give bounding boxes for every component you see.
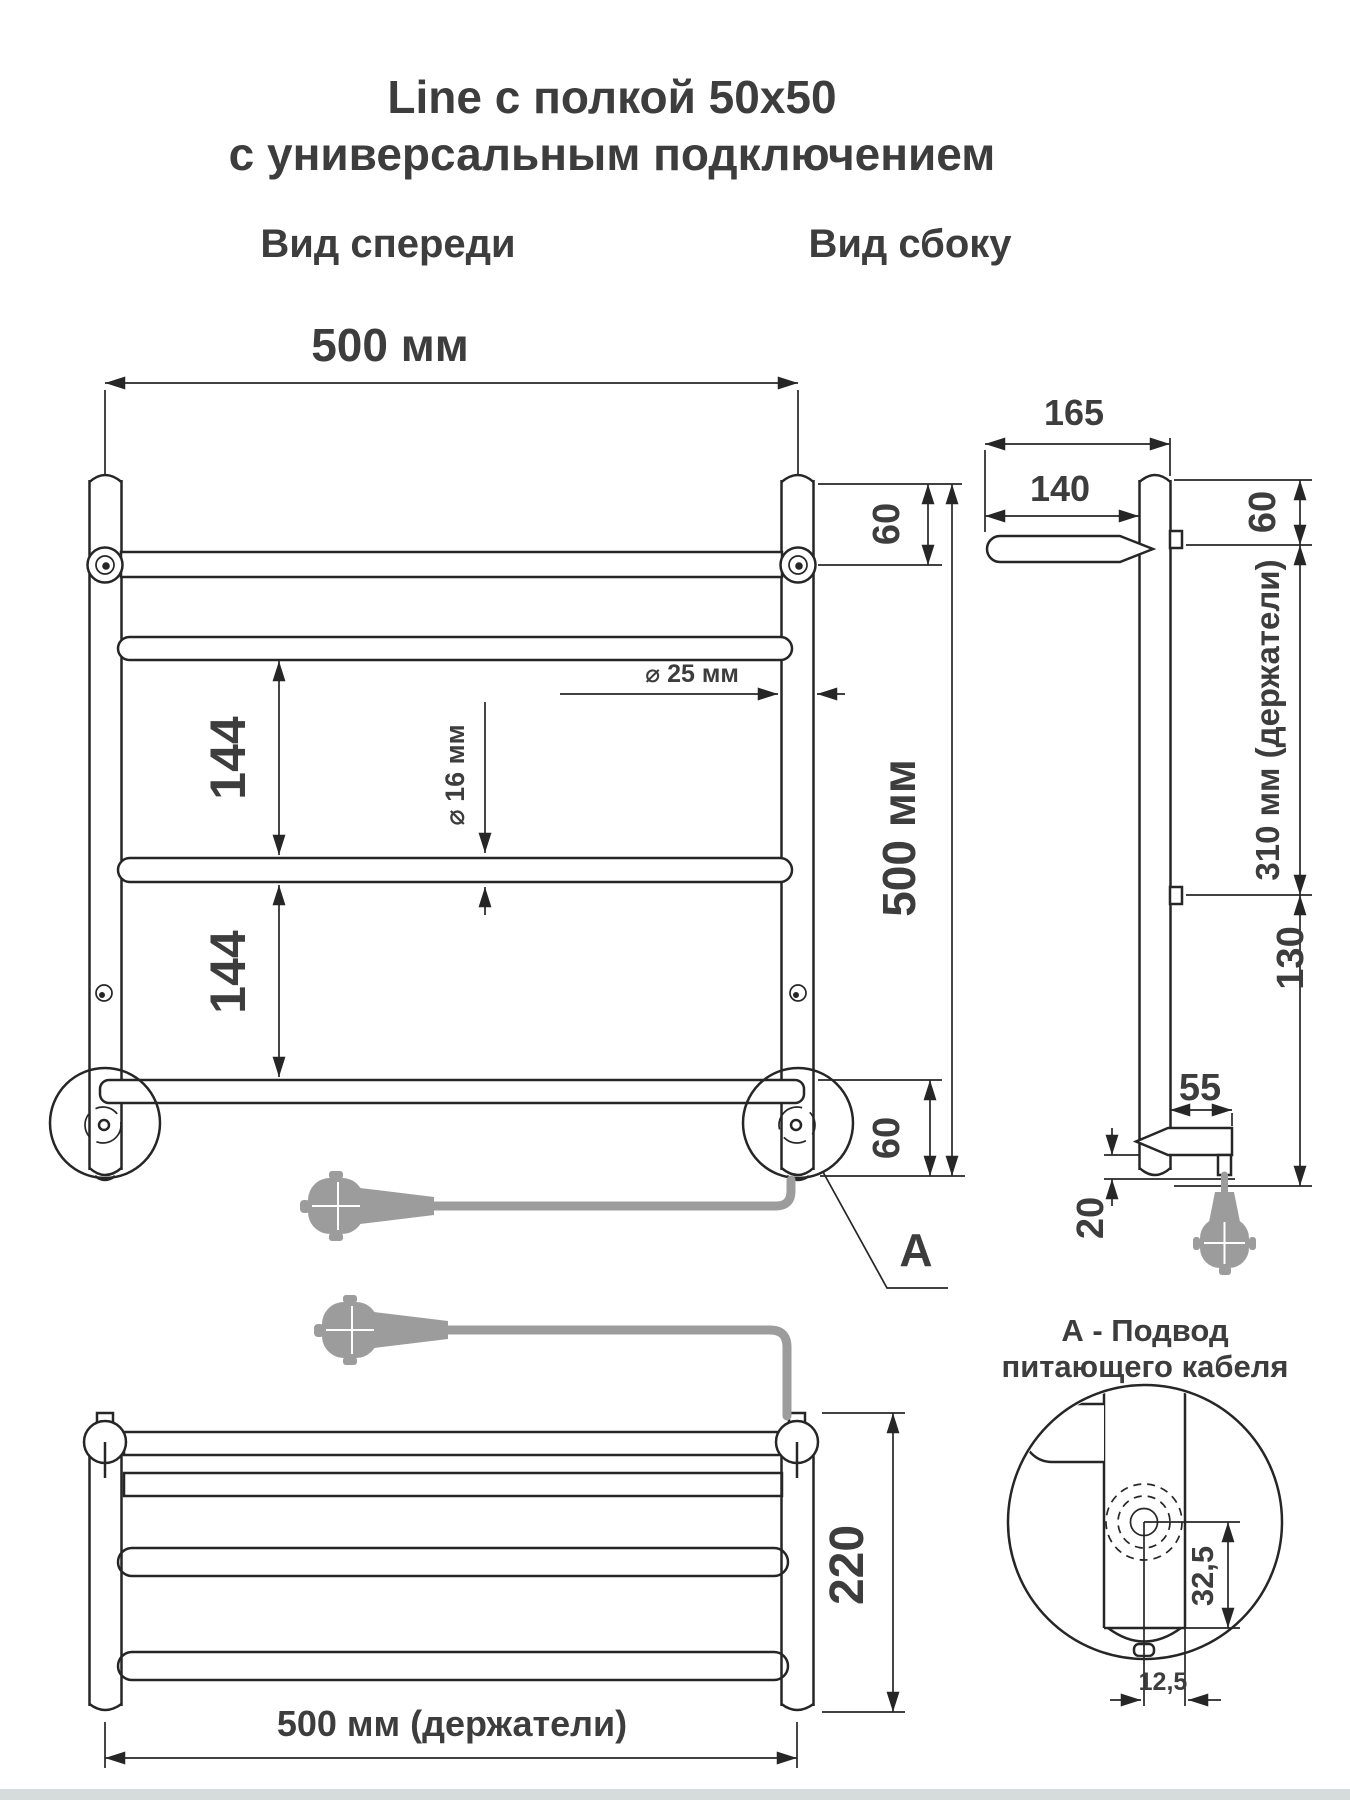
page-title-line1: Line с полкой 50x50	[387, 71, 836, 123]
top-rail-1	[124, 1432, 782, 1455]
page-bottom-strip	[0, 1789, 1350, 1800]
front-bottom-offset-label: 60	[866, 1117, 908, 1159]
side-post	[1140, 475, 1171, 1175]
detail-view: А - Подвод питающего кабеля 32,5 12,5	[1001, 1313, 1288, 1706]
front-right-flange	[781, 548, 816, 583]
side-holders-span-label: 310 мм (держатели)	[1249, 559, 1286, 880]
side-view-dimensions: 165 140 60 310 мм (держатели) 130 55 20	[985, 392, 1312, 1239]
front-rail-4	[100, 1080, 804, 1103]
front-post-diameter-label: ⌀ 25 мм	[645, 660, 739, 688]
front-left-flange	[88, 548, 123, 583]
side-bracket-top	[1170, 531, 1182, 548]
page-title-line2: с универсальным подключением	[229, 128, 996, 180]
front-rail-diameter-label: ⌀ 16 мм	[440, 724, 470, 825]
front-view	[50, 475, 853, 1180]
top-holders-width-label: 500 мм (держатели)	[277, 1703, 627, 1744]
plug-side	[1193, 1192, 1256, 1275]
front-rail-3	[118, 858, 792, 882]
detail-vertical-dim-label: 32,5	[1185, 1546, 1220, 1606]
front-view-label: Вид спереди	[260, 222, 515, 266]
top-rail-3	[118, 1548, 788, 1576]
front-post-hole-right	[790, 985, 806, 1001]
side-view-label: Вид сбоку	[808, 222, 1012, 266]
side-depth-total-label: 165	[1044, 392, 1104, 433]
cable-top-view	[448, 1330, 787, 1416]
detail-note-line1: А - Подвод	[1061, 1313, 1229, 1348]
callout-letter: А	[899, 1224, 932, 1276]
side-cable-offset-label: 20	[1070, 1197, 1112, 1239]
front-post-hole-left	[96, 985, 112, 1001]
front-rail-1	[121, 552, 782, 577]
side-bottom-arm	[1136, 1128, 1232, 1155]
side-bracket-bottom	[1170, 887, 1182, 904]
top-right-post	[776, 1413, 818, 1710]
front-rail-2	[118, 637, 792, 660]
detail-horizontal-dim-label: 12,5	[1139, 1668, 1188, 1696]
front-top-offset-label: 60	[866, 503, 908, 545]
cable-front	[434, 1180, 791, 1206]
front-view-dimensions: 500 мм 60 500 мм 60 144 144 ⌀ 16 мм ⌀ 25…	[105, 319, 965, 1288]
side-top-offset-label: 60	[1242, 491, 1284, 533]
plug-front	[300, 1171, 434, 1241]
drawing-page: Line с полкой 50x50 с универсальным подк…	[0, 0, 1350, 1800]
side-shelf-arm	[987, 536, 1153, 562]
plug-top-view	[314, 1295, 448, 1365]
front-width-dim-label: 500 мм	[311, 319, 469, 371]
side-arm-dim-label: 55	[1179, 1067, 1221, 1109]
top-rail-2	[124, 1473, 782, 1496]
technical-drawing: Line с полкой 50x50 с универсальным подк…	[0, 0, 1350, 1800]
front-gap-lower-label: 144	[200, 930, 256, 1014]
top-view-dimensions: 220 500 мм (держатели)	[105, 1413, 905, 1768]
top-view	[84, 1413, 818, 1710]
detail-note-line2: питающего кабеля	[1001, 1349, 1288, 1384]
top-depth-dim-label: 220	[821, 1525, 874, 1605]
side-bottom-span-label: 130	[1270, 926, 1312, 989]
top-rail-4	[118, 1652, 788, 1680]
front-height-dim-label: 500 мм	[873, 759, 925, 917]
side-shelf-depth-label: 140	[1030, 468, 1090, 509]
front-gap-upper-label: 144	[200, 716, 256, 800]
